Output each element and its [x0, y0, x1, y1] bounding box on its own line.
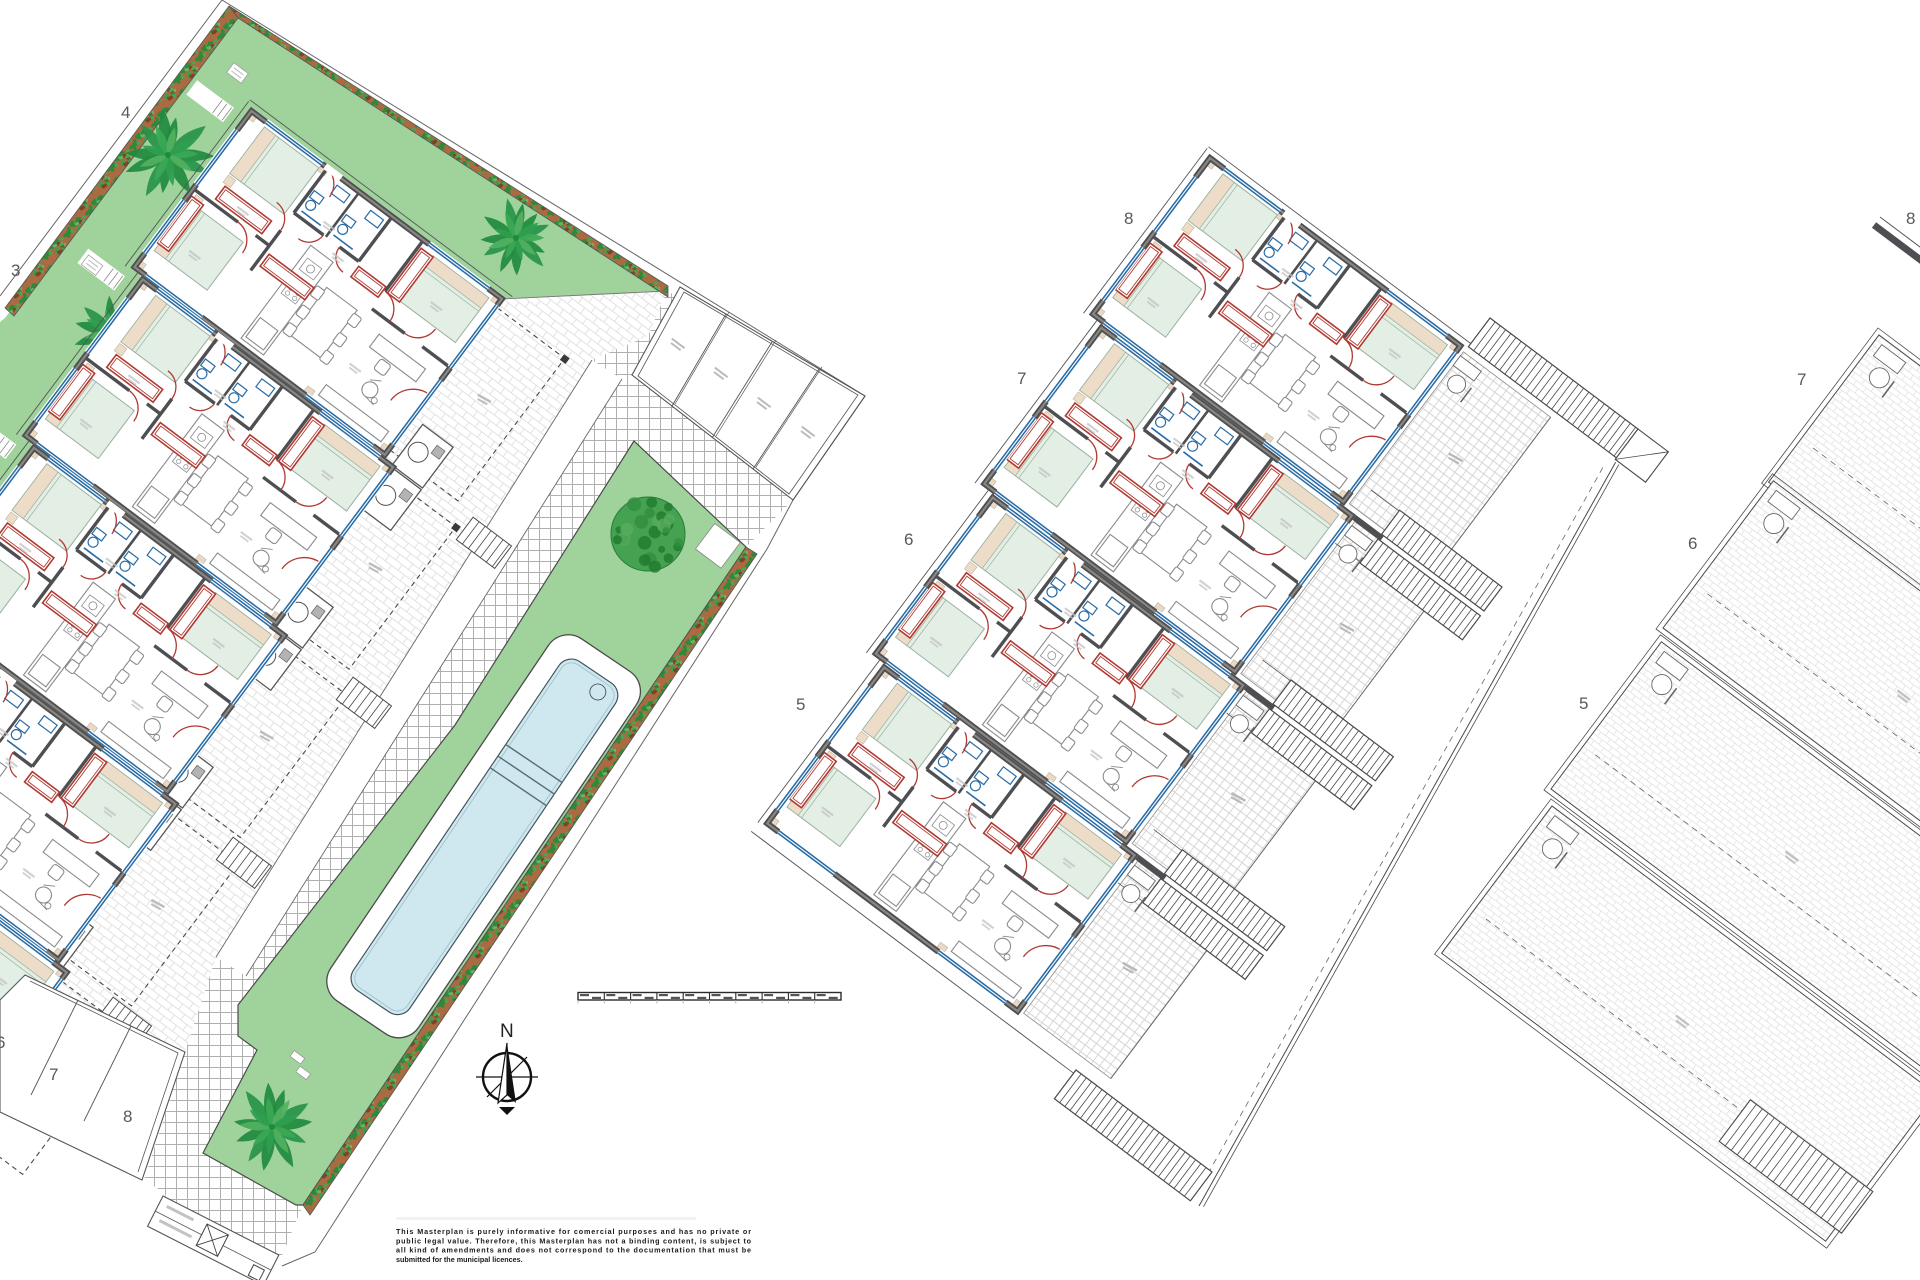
svg-text:This Masterplan is purely info: This Masterplan is purely informative fo…: [396, 1227, 751, 1236]
svg-text:N: N: [500, 1021, 514, 1042]
svg-text:7: 7: [1017, 369, 1026, 388]
svg-text:5: 5: [1579, 694, 1588, 713]
svg-text:8: 8: [1906, 209, 1915, 228]
svg-text:all kind of amendments and doe: all kind of amendments and does not corr…: [396, 1246, 751, 1255]
svg-text:8: 8: [123, 1107, 132, 1126]
svg-text:7: 7: [1797, 370, 1806, 389]
svg-text:public legal value. Therefore,: public legal value. Therefore, this Mast…: [396, 1236, 752, 1245]
svg-text:5: 5: [796, 695, 805, 714]
svg-text:6: 6: [1688, 534, 1697, 553]
svg-text:3: 3: [11, 261, 20, 280]
svg-text:4: 4: [121, 103, 130, 122]
svg-text:6: 6: [904, 530, 913, 549]
svg-text:6: 6: [0, 1033, 5, 1052]
svg-text:8: 8: [1124, 209, 1133, 228]
svg-text:7: 7: [49, 1065, 58, 1084]
svg-text:submitted for the municipal li: submitted for the municipal licences.: [396, 1255, 523, 1264]
